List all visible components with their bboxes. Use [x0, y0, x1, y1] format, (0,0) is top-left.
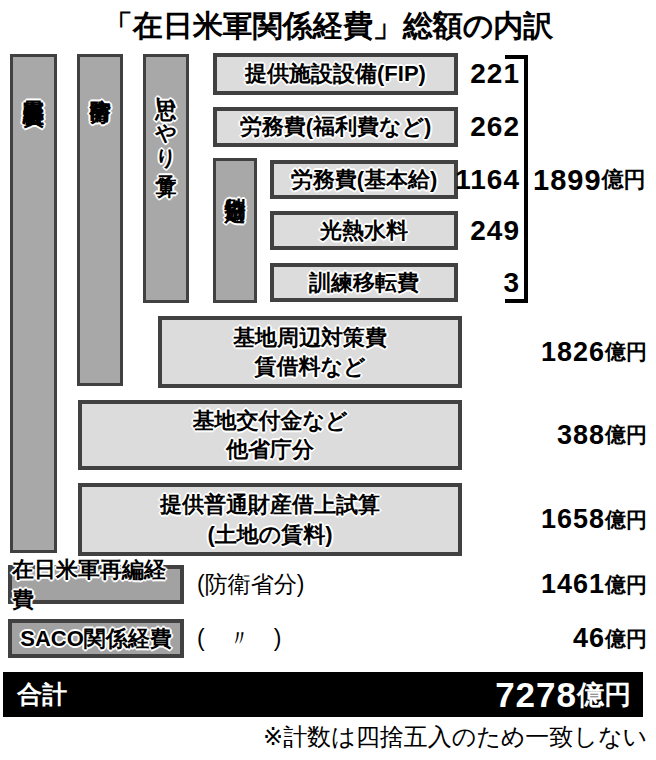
row-label-line2: (土地の賃料) [207, 520, 332, 549]
value-unit: 億円 [605, 571, 647, 599]
value-number: 388 [557, 420, 605, 451]
row-label-line1: 基地交付金など [192, 406, 347, 435]
bar-label: 防衛省分 [86, 83, 114, 87]
total-bar: 合計 7278億円 [3, 672, 643, 717]
value-number: 1658 [541, 504, 605, 535]
value-unit: 億円 [605, 625, 647, 653]
extra-note-realignment: (防衛省分) [197, 565, 304, 604]
extra-label: 在日米軍再編経費 [12, 555, 180, 615]
extra-note-saco: ( 〃 ) [197, 619, 281, 658]
row-label-line2: 賃借料など [254, 352, 365, 381]
page-title: 「在日米軍関係経費」総額の内訳 [0, 6, 656, 47]
group-subtotal: 1899億円 [533, 158, 646, 202]
item-value-fip: 221 [380, 53, 520, 95]
bar-usfj-stationing-costs: 在日米軍駐留経費 [10, 54, 57, 553]
item-value-labor-base-pay: 1164 [380, 160, 520, 199]
item-value-labor-welfare: 262 [380, 107, 520, 147]
row-box-property-lease-estimate: 提供普通財産借上試算 (土地の賃料) [78, 483, 462, 556]
row-label-line1: 提供普通財産借上試算 [160, 490, 380, 519]
subtotal-unit: 億円 [602, 165, 646, 195]
bar-label: 特別協定 [221, 181, 249, 185]
infographic-us-forces-expenses: 「在日米軍関係経費」総額の内訳 在日米軍駐留経費 防衛省分 思いやり予算 特別協… [0, 0, 656, 760]
row-box-base-grants: 基地交付金など 他省庁分 [78, 400, 462, 470]
extra-value-saco: 46億円 [427, 619, 647, 658]
item-value-training-relocation: 3 [380, 263, 520, 302]
extra-box-saco-costs: SACO関係経費 [8, 619, 184, 658]
extra-value-realignment: 1461億円 [427, 565, 647, 604]
bar-special-agreement: 特別協定 [213, 158, 257, 303]
bar-defense-ministry-share: 防衛省分 [77, 54, 123, 386]
bar-sympathy-budget: 思いやり予算 [143, 54, 189, 303]
value-unit: 億円 [605, 421, 647, 449]
row-value-base-countermeasures: 1826億円 [427, 316, 647, 388]
total-value: 7278億円 [495, 675, 631, 715]
total-number: 7278 [495, 675, 577, 715]
value-unit: 億円 [605, 506, 647, 534]
total-unit: 億円 [577, 677, 631, 713]
bar-label: 思いやり予算 [152, 83, 180, 161]
row-box-base-countermeasures: 基地周辺対策費 賃借料など [158, 316, 462, 388]
subtotal-number: 1899 [533, 164, 602, 197]
group-bracket [505, 55, 528, 303]
item-value-utilities: 249 [380, 211, 520, 250]
row-value-base-grants: 388億円 [427, 400, 647, 470]
row-label-line2: 他省庁分 [226, 435, 314, 464]
row-value-property-lease-estimate: 1658億円 [427, 483, 647, 556]
value-number: 1461 [541, 569, 605, 600]
value-number: 1826 [541, 337, 605, 368]
total-label: 合計 [17, 678, 67, 711]
value-number: 46 [573, 623, 605, 654]
footnote: ※計数は四捨五入のため一致しない [263, 721, 647, 753]
value-unit: 億円 [605, 338, 647, 366]
bar-label: 在日米軍駐留経費 [20, 83, 48, 91]
extra-box-realignment-costs: 在日米軍再編経費 [8, 565, 184, 604]
row-label-line1: 基地周辺対策費 [233, 323, 387, 352]
extra-label: SACO関係経費 [20, 624, 172, 654]
